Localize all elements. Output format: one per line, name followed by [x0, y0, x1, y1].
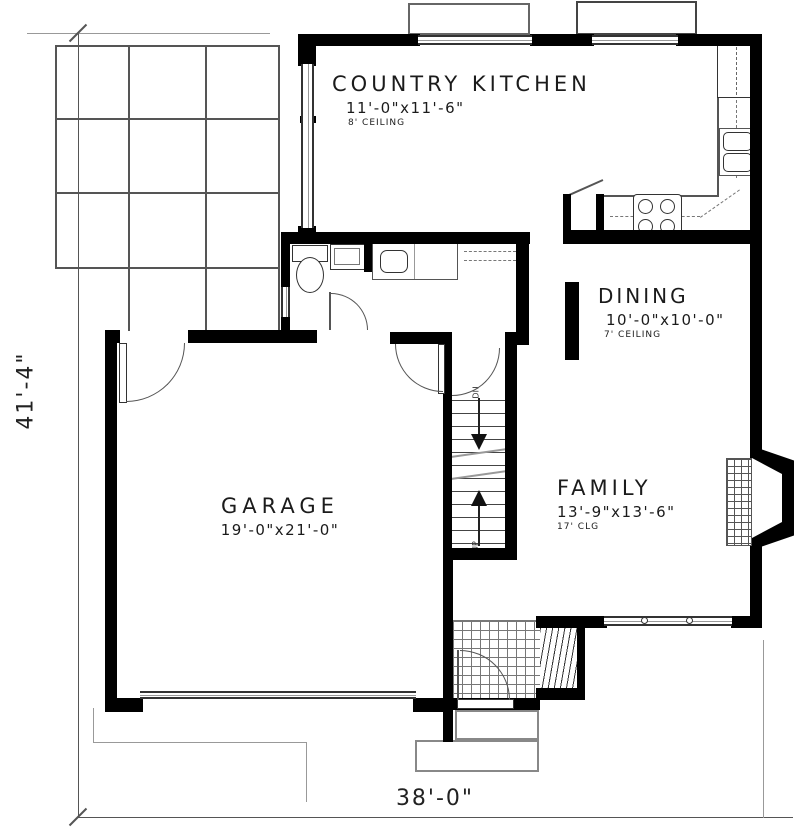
- vanity-basin: [334, 248, 360, 265]
- dining-label: DINING 10'-0"x10'-0" 7' CEILING: [598, 284, 725, 340]
- kitchen-dims: 11'-0"x11'-6": [346, 99, 591, 117]
- dining-ceiling: 7' CEILING: [604, 330, 725, 340]
- garage-entry-door-arc: [395, 344, 443, 392]
- garage-name: GARAGE: [205, 494, 355, 518]
- driveway-edge: [93, 742, 306, 743]
- up-arrow: [471, 490, 487, 506]
- wall-dining-fin: [565, 282, 579, 360]
- window-bath: [281, 287, 290, 317]
- wall-top: [298, 34, 420, 46]
- closet-shelf-dash: [464, 260, 516, 261]
- porch-railing: [604, 616, 732, 626]
- overall-width-dimension: 38'-0": [360, 786, 510, 811]
- bottom-dimension-line: [78, 817, 793, 818]
- wall-pantry: [563, 194, 571, 232]
- wall-garage-top: [188, 330, 317, 343]
- wall-bath-top: [283, 232, 530, 244]
- right-extension-line: [763, 640, 764, 818]
- family-ceiling: 17' CLG: [557, 522, 676, 532]
- deck-line: [55, 45, 57, 267]
- top-extension-line: [27, 33, 270, 34]
- sink-basin: [723, 132, 752, 151]
- laundry-divider: [414, 241, 415, 279]
- deck-line: [128, 45, 130, 331]
- wall-kitchen-left-cap: [298, 34, 316, 66]
- porch-post: [641, 617, 648, 624]
- laundry-sink: [380, 250, 408, 273]
- sink-basin: [723, 153, 752, 172]
- family-label: FAMILY 13'-9"x13'-6" 17' CLG: [557, 476, 676, 532]
- wall-kitchen-dining: [563, 230, 762, 244]
- window-top-left: [418, 35, 532, 45]
- garage-door: [140, 691, 416, 699]
- deck-line: [205, 45, 207, 331]
- down-arrow: [471, 434, 487, 450]
- wall-closet: [516, 244, 529, 345]
- fireplace-hearth: [726, 458, 752, 546]
- front-door-leaf: [457, 650, 459, 700]
- bath-door-arc: [331, 293, 368, 330]
- window-top-right: [592, 35, 678, 45]
- stoop-lower: [415, 740, 539, 772]
- wall-bath-left: [281, 232, 290, 289]
- wall-garage-left: [105, 330, 117, 712]
- refrigerator-door-line: [736, 47, 737, 95]
- bay-bump-right: [576, 1, 697, 35]
- closet-hanging-hatch: [540, 628, 577, 690]
- dining-dims: 10'-0"x10'-0": [606, 311, 725, 329]
- family-name: FAMILY: [557, 476, 676, 500]
- deck-line: [278, 45, 280, 331]
- bay-bump-left: [408, 3, 530, 35]
- family-dims: 13'-9"x13'-6": [557, 503, 676, 521]
- wall-family-bottom: [731, 616, 762, 628]
- garage-label: GARAGE 19'-0"x21'-0": [205, 494, 355, 539]
- wall-stair-right: [505, 332, 517, 558]
- window-kitchen-left: [301, 64, 314, 228]
- wall-right-upper: [750, 34, 762, 458]
- deck-line: [55, 267, 280, 269]
- deck-line: [55, 118, 280, 120]
- dining-name: DINING: [598, 284, 725, 308]
- driveway-edge: [306, 742, 307, 802]
- overall-height-dimension: 41'-4": [14, 351, 39, 431]
- service-door-arc: [126, 343, 185, 402]
- kitchen-label: COUNTRY KITCHEN 11'-0"x11'-6" 8' CEILING: [332, 72, 591, 128]
- wall-top: [530, 34, 594, 46]
- floor-plan: 41'-4" 38'-0": [0, 0, 800, 832]
- burner: [638, 199, 653, 214]
- front-door-panel: [457, 699, 514, 709]
- wall-pantry: [596, 194, 604, 232]
- driveway-edge: [93, 708, 94, 743]
- stoop-upper: [455, 710, 539, 740]
- wall-stair-bottom: [443, 548, 517, 560]
- burner: [660, 199, 675, 214]
- deck-line: [55, 192, 280, 194]
- closet-shelf-dash: [464, 251, 516, 252]
- garage-dims: 19'-0"x21'-0": [205, 521, 355, 539]
- left-dimension-line: [78, 33, 79, 818]
- wall-bath-left: [281, 316, 290, 342]
- kitchen-ceiling: 8' CEILING: [348, 118, 591, 128]
- toilet-bowl: [296, 257, 324, 293]
- kitchen-name: COUNTRY KITCHEN: [332, 72, 591, 96]
- stair-arrow-shaft-down: [478, 398, 480, 436]
- wall-garage-bottom: [105, 698, 143, 712]
- wall-foyer-left: [443, 558, 453, 742]
- wall-hall-garage: [390, 332, 452, 344]
- deck-line: [55, 45, 280, 47]
- counter-dashed-corner: [700, 189, 740, 217]
- porch-post: [686, 617, 693, 624]
- wall-bath-divider: [364, 232, 372, 272]
- wall-closet-bottom: [536, 688, 585, 700]
